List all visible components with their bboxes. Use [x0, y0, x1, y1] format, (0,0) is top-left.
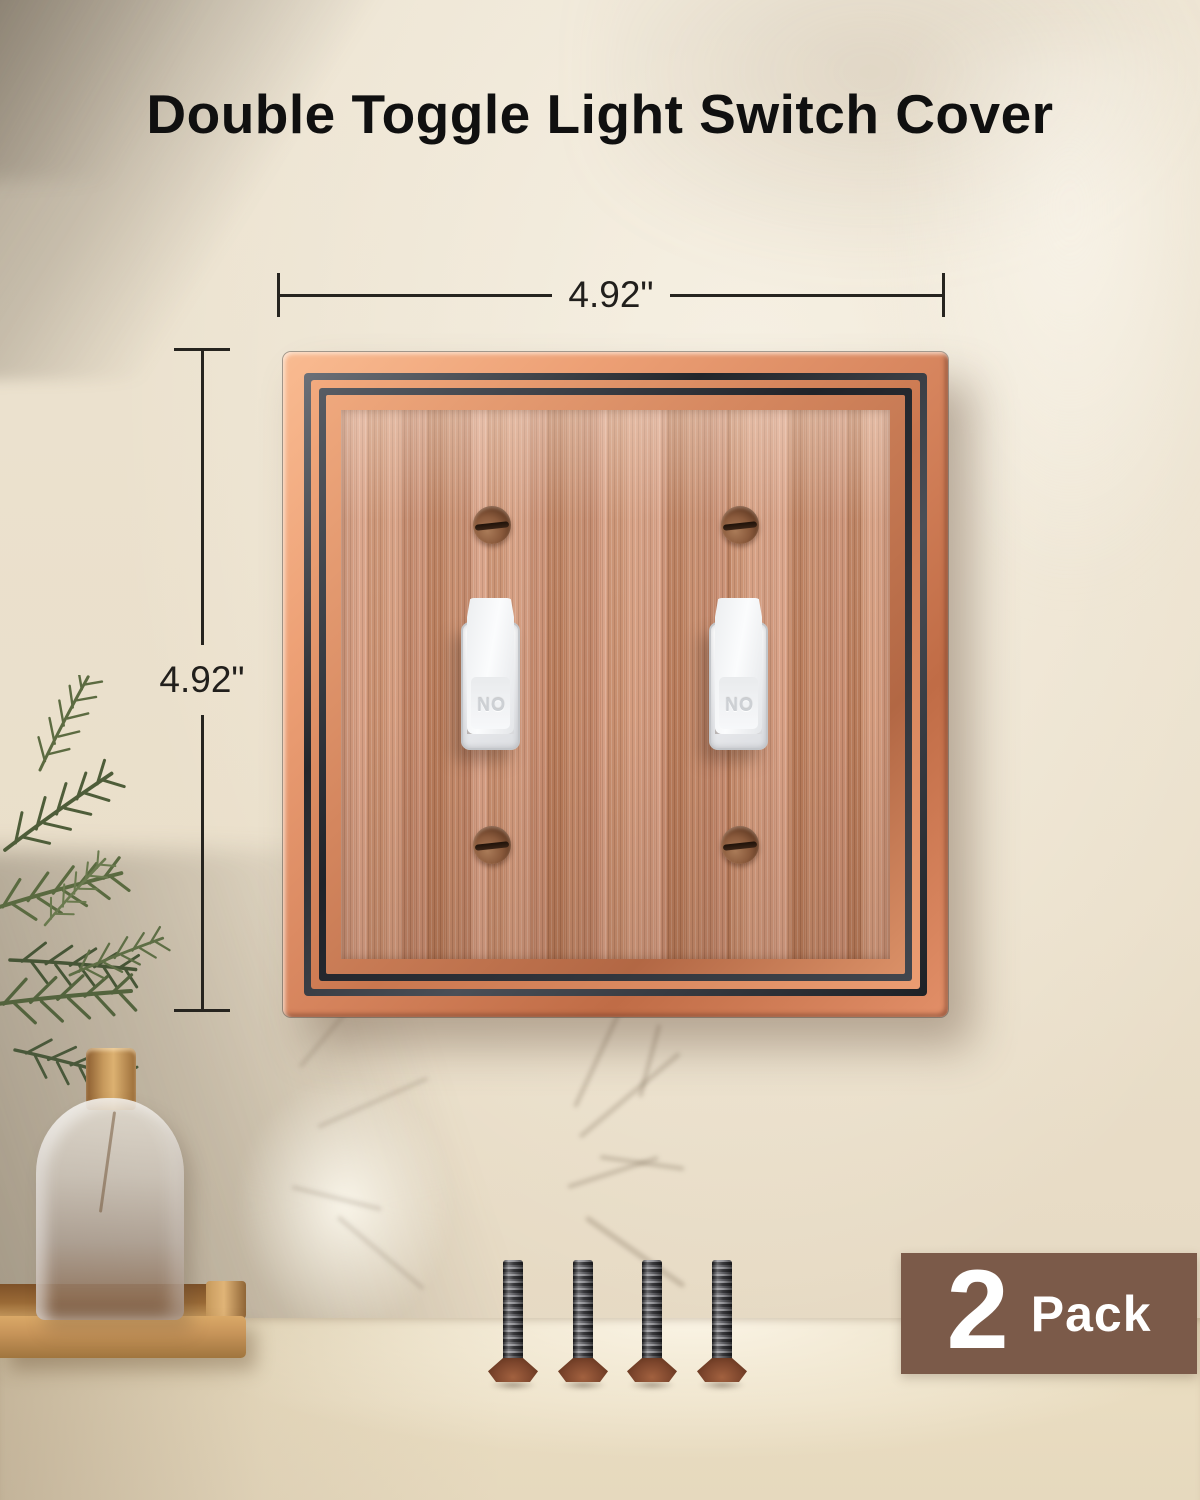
dimension-line — [670, 294, 942, 297]
toggle-lever-face: ON — [719, 677, 758, 729]
mounting-screw — [721, 826, 759, 864]
bottle-body — [36, 1098, 184, 1320]
pack-count: 2 — [946, 1262, 1008, 1358]
wooden-tray-edge — [206, 1281, 246, 1319]
loose-screw — [696, 1256, 748, 1392]
width-dimension-label: 4.92" — [552, 274, 669, 316]
page-title: Double Toggle Light Switch Cover — [0, 82, 1200, 146]
screw-head — [558, 1358, 608, 1382]
width-dimension: 4.92" — [277, 273, 945, 317]
dimension-line — [280, 294, 552, 297]
loose-screw — [557, 1256, 609, 1392]
plate-brushed-copper-field — [341, 410, 890, 959]
glass-bottle — [34, 1048, 186, 1320]
loose-screw — [487, 1256, 539, 1392]
pack-label: Pack — [1031, 1285, 1152, 1343]
toggle-switch[interactable]: ON — [709, 622, 768, 750]
toggle-lever[interactable]: ON — [467, 598, 514, 734]
mounting-screw — [473, 826, 511, 864]
mounting-screw — [473, 506, 511, 544]
screw-head — [627, 1358, 677, 1382]
mounting-screw — [721, 506, 759, 544]
dimension-line — [201, 715, 204, 1009]
height-dimension: 4.92" — [174, 348, 230, 1012]
dimension-tick — [942, 273, 945, 317]
toggle-on-label: ON — [476, 693, 505, 714]
dimension-line — [201, 351, 204, 645]
screw-shaft — [712, 1260, 732, 1362]
toggle-lever[interactable]: ON — [715, 598, 762, 734]
toggle-switch[interactable]: ON — [461, 622, 520, 750]
screw-shaft — [503, 1260, 523, 1362]
height-dimension-label: 4.92" — [159, 645, 244, 715]
toggle-on-label: ON — [724, 693, 753, 714]
switch-plate: ON ON — [283, 352, 948, 1017]
toggle-lever-face: ON — [471, 677, 510, 729]
screw-shaft — [642, 1260, 662, 1362]
wooden-tray — [0, 1316, 246, 1358]
loose-screw — [626, 1256, 678, 1392]
dimension-tick — [174, 1009, 230, 1012]
pack-badge: 2 Pack — [901, 1253, 1197, 1374]
product-image: Double Toggle Light Switch Cover 4.92" 4… — [0, 0, 1200, 1500]
screw-shaft — [573, 1260, 593, 1362]
screw-head — [697, 1358, 747, 1382]
screw-head — [488, 1358, 538, 1382]
